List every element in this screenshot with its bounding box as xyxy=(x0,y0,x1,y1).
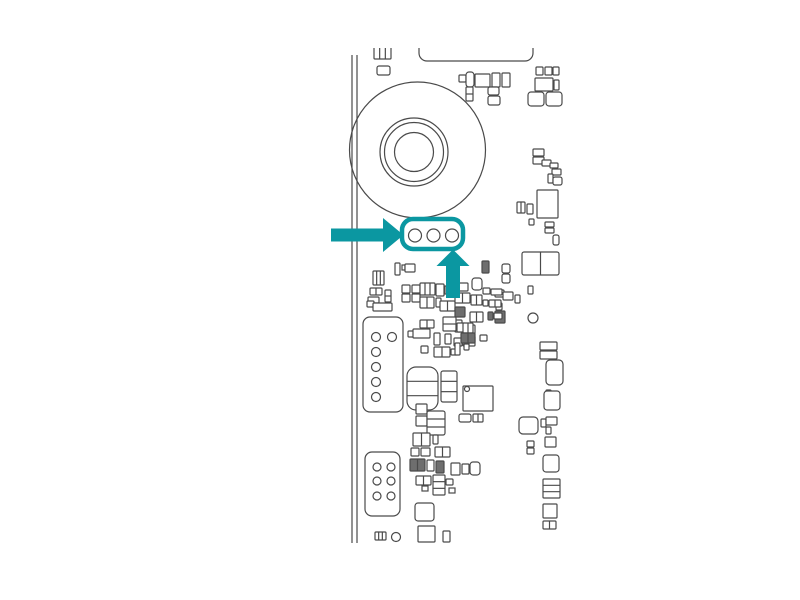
smd-component xyxy=(374,44,391,59)
smd-component xyxy=(459,75,466,82)
connector-pin-hole xyxy=(373,492,381,500)
smd-component xyxy=(421,346,428,353)
smd-component xyxy=(528,286,533,294)
smd-component xyxy=(471,295,482,305)
smd-component xyxy=(503,292,513,300)
smd-component xyxy=(455,307,465,317)
smd-component xyxy=(440,301,455,311)
smd-component xyxy=(546,427,551,434)
smd-component xyxy=(420,283,435,295)
speaker-ring xyxy=(385,123,444,182)
connector-pin-hole xyxy=(372,393,381,402)
smd-component xyxy=(402,294,410,302)
smd-component xyxy=(545,222,554,227)
smd-component xyxy=(443,531,450,542)
smd-component xyxy=(541,419,546,427)
smd-component xyxy=(472,278,482,290)
smd-component xyxy=(459,414,471,422)
smd-component xyxy=(433,475,445,495)
smd-component xyxy=(463,323,473,333)
smd-component xyxy=(494,313,502,319)
smd-component xyxy=(545,437,556,447)
smd-component xyxy=(449,488,455,493)
smd-component xyxy=(470,462,480,475)
highlighted-connector-pin xyxy=(409,229,422,242)
connector-upper-left xyxy=(363,317,403,412)
smd-component xyxy=(377,66,390,75)
smd-component xyxy=(527,441,534,447)
highlighted-connector-pin xyxy=(427,229,440,242)
smd-component xyxy=(519,417,538,434)
smd-component xyxy=(489,300,501,307)
smd-component xyxy=(436,461,444,473)
connector-pin-hole xyxy=(387,463,395,471)
speaker-ring xyxy=(380,118,448,186)
smd-component xyxy=(413,433,430,446)
smd-component xyxy=(553,235,559,245)
connector-pin-hole xyxy=(372,348,381,357)
smd-component xyxy=(543,455,559,472)
smd-component xyxy=(492,73,500,87)
smd-component xyxy=(475,74,490,87)
smd-component xyxy=(473,414,483,422)
smd-component xyxy=(522,252,559,275)
smd-component xyxy=(370,288,382,295)
illustration-canvas: Black-and-white line drawing of a printe… xyxy=(0,0,800,600)
smd-component xyxy=(553,177,562,185)
smd-component xyxy=(421,448,430,456)
pcb-circle-pad xyxy=(392,533,401,542)
pcb-circle-pad xyxy=(528,313,538,323)
smd-component xyxy=(420,297,434,308)
smd-component xyxy=(466,87,473,101)
smd-component xyxy=(434,347,450,357)
smd-component xyxy=(545,228,554,233)
smd-component xyxy=(483,300,488,306)
smd-component xyxy=(415,503,434,521)
smd-component xyxy=(416,476,431,485)
smd-component xyxy=(373,303,392,311)
smd-component xyxy=(546,417,557,425)
connector-pin-hole xyxy=(373,477,381,485)
smd-component xyxy=(517,202,525,213)
smd-component xyxy=(412,285,420,293)
smd-component xyxy=(416,404,427,414)
smd-component xyxy=(455,343,460,355)
top-panel-outline xyxy=(419,30,533,61)
smd-component xyxy=(546,360,563,385)
smd-component xyxy=(464,344,469,350)
smd-component xyxy=(466,72,474,87)
smd-component xyxy=(537,190,558,218)
smd-component xyxy=(546,92,562,106)
smd-component xyxy=(416,416,427,426)
smd-component xyxy=(451,463,460,475)
smd-component xyxy=(533,149,544,156)
smd-component xyxy=(527,204,533,214)
smd-component xyxy=(422,486,428,491)
smd-component xyxy=(443,317,456,331)
smd-component xyxy=(373,271,384,285)
connector-pin-hole xyxy=(387,477,395,485)
smd-component xyxy=(441,371,457,402)
smd-component xyxy=(480,335,487,341)
connector-pin-hole xyxy=(387,492,395,500)
connector-pin-hole xyxy=(372,378,381,387)
smd-component xyxy=(528,92,544,106)
smd-component xyxy=(540,342,557,350)
smd-component xyxy=(543,504,557,518)
smd-component xyxy=(548,174,553,183)
smd-component xyxy=(515,295,520,303)
smd-component xyxy=(502,274,510,283)
smd-component xyxy=(385,290,391,302)
smd-component xyxy=(543,479,560,498)
smd-component xyxy=(405,264,415,272)
highlighted-connector-pin xyxy=(446,229,459,242)
connector-lower-left xyxy=(365,452,400,516)
smd-component xyxy=(488,312,493,320)
smd-component xyxy=(502,73,510,87)
smd-component xyxy=(462,464,469,474)
smd-component xyxy=(435,447,450,457)
smd-component xyxy=(540,351,557,359)
pcb-circle-pad xyxy=(465,387,470,392)
connector-pin-hole xyxy=(388,333,397,342)
smd-component xyxy=(395,263,400,275)
connector-pin-hole xyxy=(372,333,381,342)
speaker-ring xyxy=(395,133,434,172)
smd-component xyxy=(411,448,419,456)
smd-component xyxy=(529,219,534,225)
smd-component xyxy=(545,67,552,75)
smd-component xyxy=(418,526,435,542)
smd-component xyxy=(482,261,489,273)
connector-pin-hole xyxy=(373,463,381,471)
smd-component xyxy=(433,435,438,444)
smd-component xyxy=(445,334,451,344)
smd-component xyxy=(436,284,444,296)
smd-component xyxy=(488,96,500,105)
smd-component xyxy=(543,521,556,529)
smd-component xyxy=(553,67,559,75)
smd-component xyxy=(536,67,543,75)
smd-component xyxy=(550,163,558,168)
smd-component xyxy=(446,479,453,485)
smd-component xyxy=(535,78,553,91)
connector-pin-hole xyxy=(372,363,381,372)
smd-component xyxy=(527,448,534,454)
smd-component xyxy=(461,333,475,343)
pcb-diagram xyxy=(0,0,800,600)
smd-component xyxy=(488,87,499,95)
smd-component xyxy=(470,312,483,322)
smd-component xyxy=(375,532,386,540)
smd-component xyxy=(483,288,490,294)
smd-component xyxy=(427,460,434,471)
smd-component xyxy=(412,294,420,302)
smd-component xyxy=(434,333,440,345)
smd-component xyxy=(554,80,559,90)
smd-component xyxy=(410,459,425,471)
smd-component xyxy=(544,391,560,410)
smd-component xyxy=(427,411,445,435)
callout-arrow-left xyxy=(331,218,404,252)
smd-component xyxy=(413,329,430,338)
smd-component xyxy=(420,320,434,328)
smd-component xyxy=(491,289,502,295)
speaker-ring xyxy=(350,82,486,218)
smd-component xyxy=(502,264,510,273)
smd-component xyxy=(402,285,410,293)
